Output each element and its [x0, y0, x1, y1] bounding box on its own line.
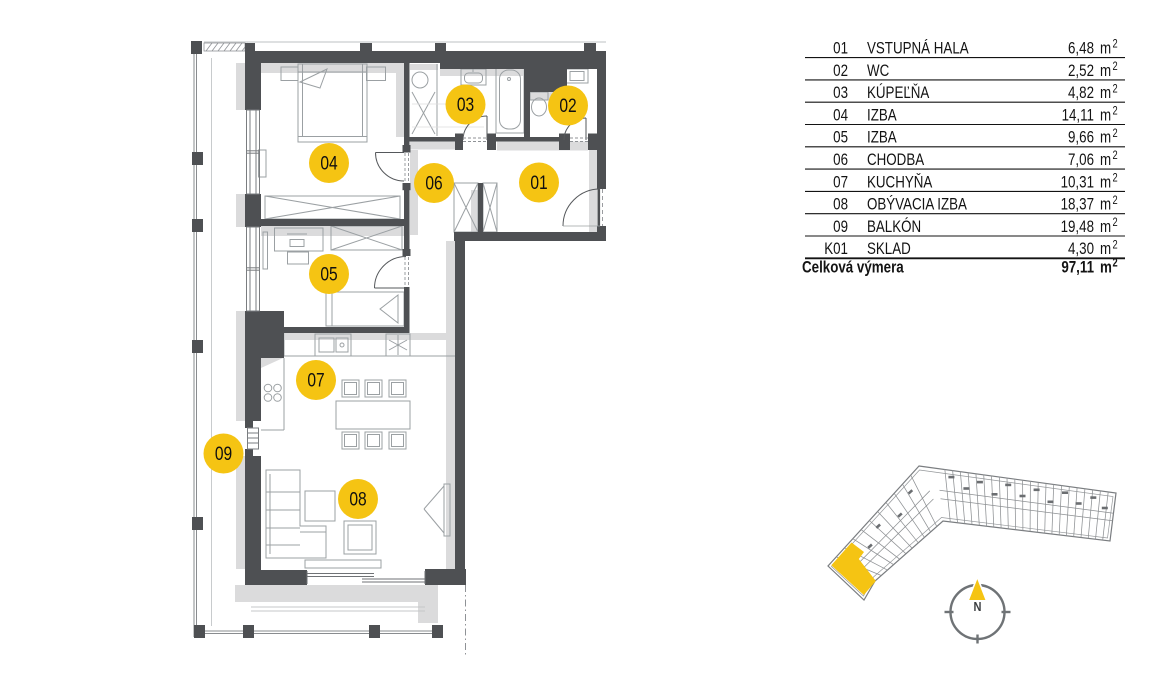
svg-text:m: m	[1100, 106, 1111, 125]
svg-text:6,48: 6,48	[1068, 39, 1094, 58]
svg-text:m: m	[1100, 258, 1112, 277]
svg-text:03: 03	[833, 84, 848, 103]
svg-text:05: 05	[833, 128, 848, 147]
svg-text:IZBA: IZBA	[867, 128, 897, 147]
svg-text:m: m	[1100, 195, 1111, 214]
svg-text:2: 2	[1113, 195, 1118, 207]
svg-text:m: m	[1100, 151, 1111, 170]
svg-text:Celková výmera: Celková výmera	[802, 258, 904, 277]
svg-text:BALKÓN: BALKÓN	[867, 218, 921, 237]
svg-text:m: m	[1100, 240, 1111, 259]
svg-text:N: N	[974, 599, 982, 614]
svg-text:2,52: 2,52	[1068, 62, 1094, 81]
svg-text:05: 05	[320, 263, 337, 285]
svg-text:06: 06	[425, 172, 442, 194]
svg-text:04: 04	[833, 106, 848, 125]
svg-text:07: 07	[833, 173, 848, 192]
svg-text:02: 02	[833, 62, 848, 81]
svg-text:2: 2	[1113, 84, 1118, 96]
svg-text:07: 07	[307, 369, 324, 391]
svg-text:97,11: 97,11	[1061, 258, 1094, 277]
svg-text:2: 2	[1113, 128, 1118, 140]
svg-text:2: 2	[1113, 61, 1118, 73]
svg-text:09: 09	[215, 443, 232, 465]
svg-text:WC: WC	[867, 62, 889, 81]
svg-text:02: 02	[559, 95, 576, 117]
svg-text:9,66: 9,66	[1068, 128, 1094, 147]
svg-text:m: m	[1100, 173, 1111, 192]
svg-text:04: 04	[320, 152, 338, 174]
svg-text:SKLAD: SKLAD	[867, 240, 911, 259]
svg-text:2: 2	[1113, 150, 1118, 162]
svg-text:IZBA: IZBA	[867, 106, 897, 125]
svg-text:4,30: 4,30	[1068, 240, 1094, 259]
svg-text:VSTUPNÁ HALA: VSTUPNÁ HALA	[867, 39, 969, 58]
svg-text:08: 08	[833, 195, 848, 214]
svg-text:m: m	[1100, 39, 1111, 58]
svg-text:01: 01	[530, 172, 547, 194]
svg-text:18,37: 18,37	[1061, 195, 1094, 214]
svg-text:m: m	[1100, 84, 1111, 103]
svg-text:06: 06	[833, 151, 848, 170]
svg-text:KUCHYŇA: KUCHYŇA	[867, 173, 932, 192]
svg-text:2: 2	[1113, 39, 1118, 51]
svg-text:19,48: 19,48	[1061, 218, 1094, 237]
svg-text:2: 2	[1113, 106, 1118, 118]
svg-text:CHODBA: CHODBA	[867, 151, 924, 170]
svg-text:01: 01	[833, 39, 848, 58]
svg-text:7,06: 7,06	[1068, 151, 1094, 170]
svg-text:09: 09	[833, 218, 848, 237]
svg-text:m: m	[1100, 128, 1111, 147]
svg-text:14,11: 14,11	[1062, 106, 1094, 125]
svg-text:KÚPEĽŇA: KÚPEĽŇA	[867, 84, 929, 103]
svg-text:2: 2	[1113, 217, 1118, 229]
svg-text:m: m	[1100, 218, 1111, 237]
svg-text:m: m	[1100, 62, 1111, 81]
svg-text:4,82: 4,82	[1068, 84, 1094, 103]
svg-text:10,31: 10,31	[1061, 173, 1094, 192]
svg-text:2: 2	[1113, 258, 1118, 270]
svg-text:08: 08	[349, 488, 366, 510]
svg-text:K01: K01	[824, 240, 848, 259]
svg-text:2: 2	[1113, 173, 1118, 185]
svg-text:03: 03	[457, 94, 474, 116]
svg-text:OBÝVACIA IZBA: OBÝVACIA IZBA	[867, 195, 967, 214]
svg-text:2: 2	[1113, 240, 1118, 252]
